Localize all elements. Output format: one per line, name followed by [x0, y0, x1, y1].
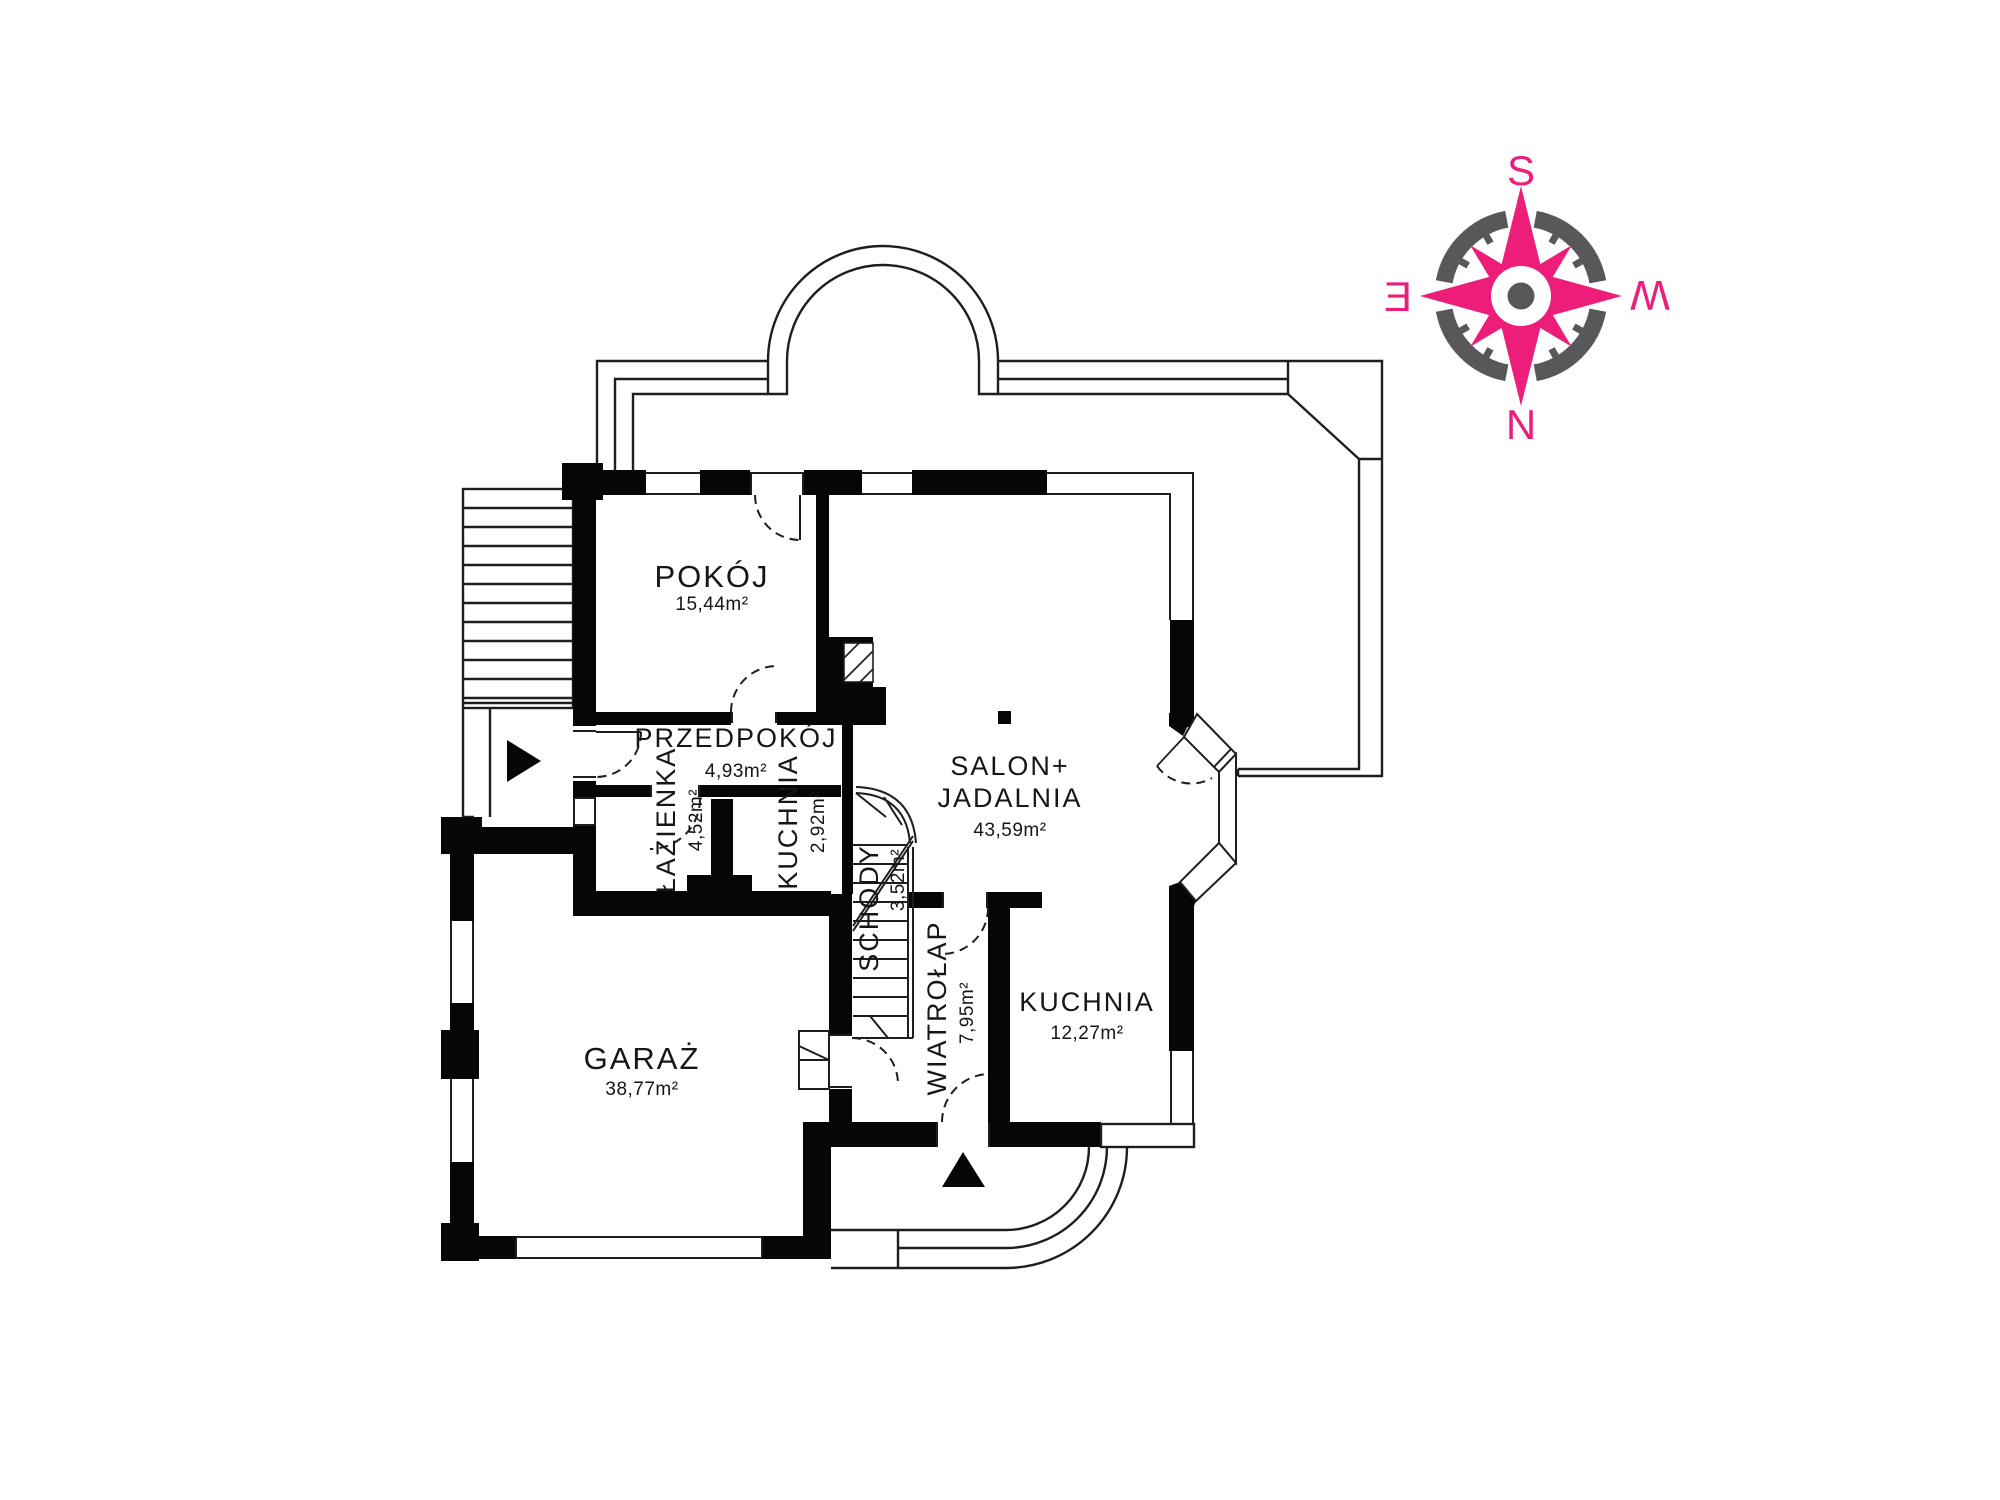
svg-text:4,93m²: 4,93m²	[705, 761, 767, 782]
svg-text:GARAŻ: GARAŻ	[584, 1041, 701, 1076]
svg-text:2,92m²: 2,92m²	[808, 791, 829, 853]
svg-text:JADALNIA: JADALNIA	[937, 783, 1082, 813]
svg-text:38,77m²: 38,77m²	[605, 1079, 678, 1100]
svg-text:KUCHNIA: KUCHNIA	[773, 754, 803, 890]
svg-text:15,44m²: 15,44m²	[675, 594, 748, 615]
svg-text:SCHODY: SCHODY	[854, 844, 884, 972]
svg-text:ŁAZIENKA: ŁAZIENKA	[651, 747, 681, 894]
svg-text:WIATROŁAP: WIATROŁAP	[922, 920, 952, 1095]
svg-text:4,52m²: 4,52m²	[686, 789, 707, 851]
svg-text:SALON+: SALON+	[950, 751, 1069, 781]
svg-text:W: W	[1630, 272, 1670, 319]
svg-text:KUCHNIA: KUCHNIA	[1019, 987, 1155, 1017]
svg-text:S: S	[1507, 147, 1535, 194]
svg-text:7,95m²: 7,95m²	[957, 982, 978, 1044]
svg-text:3,52m²: 3,52m²	[888, 849, 909, 911]
svg-text:E: E	[1384, 273, 1412, 320]
svg-text:12,27m²: 12,27m²	[1050, 1023, 1123, 1044]
svg-text:POKÓJ: POKÓJ	[654, 559, 769, 594]
svg-text:43,59m²: 43,59m²	[973, 820, 1046, 841]
svg-text:N: N	[1506, 401, 1536, 448]
